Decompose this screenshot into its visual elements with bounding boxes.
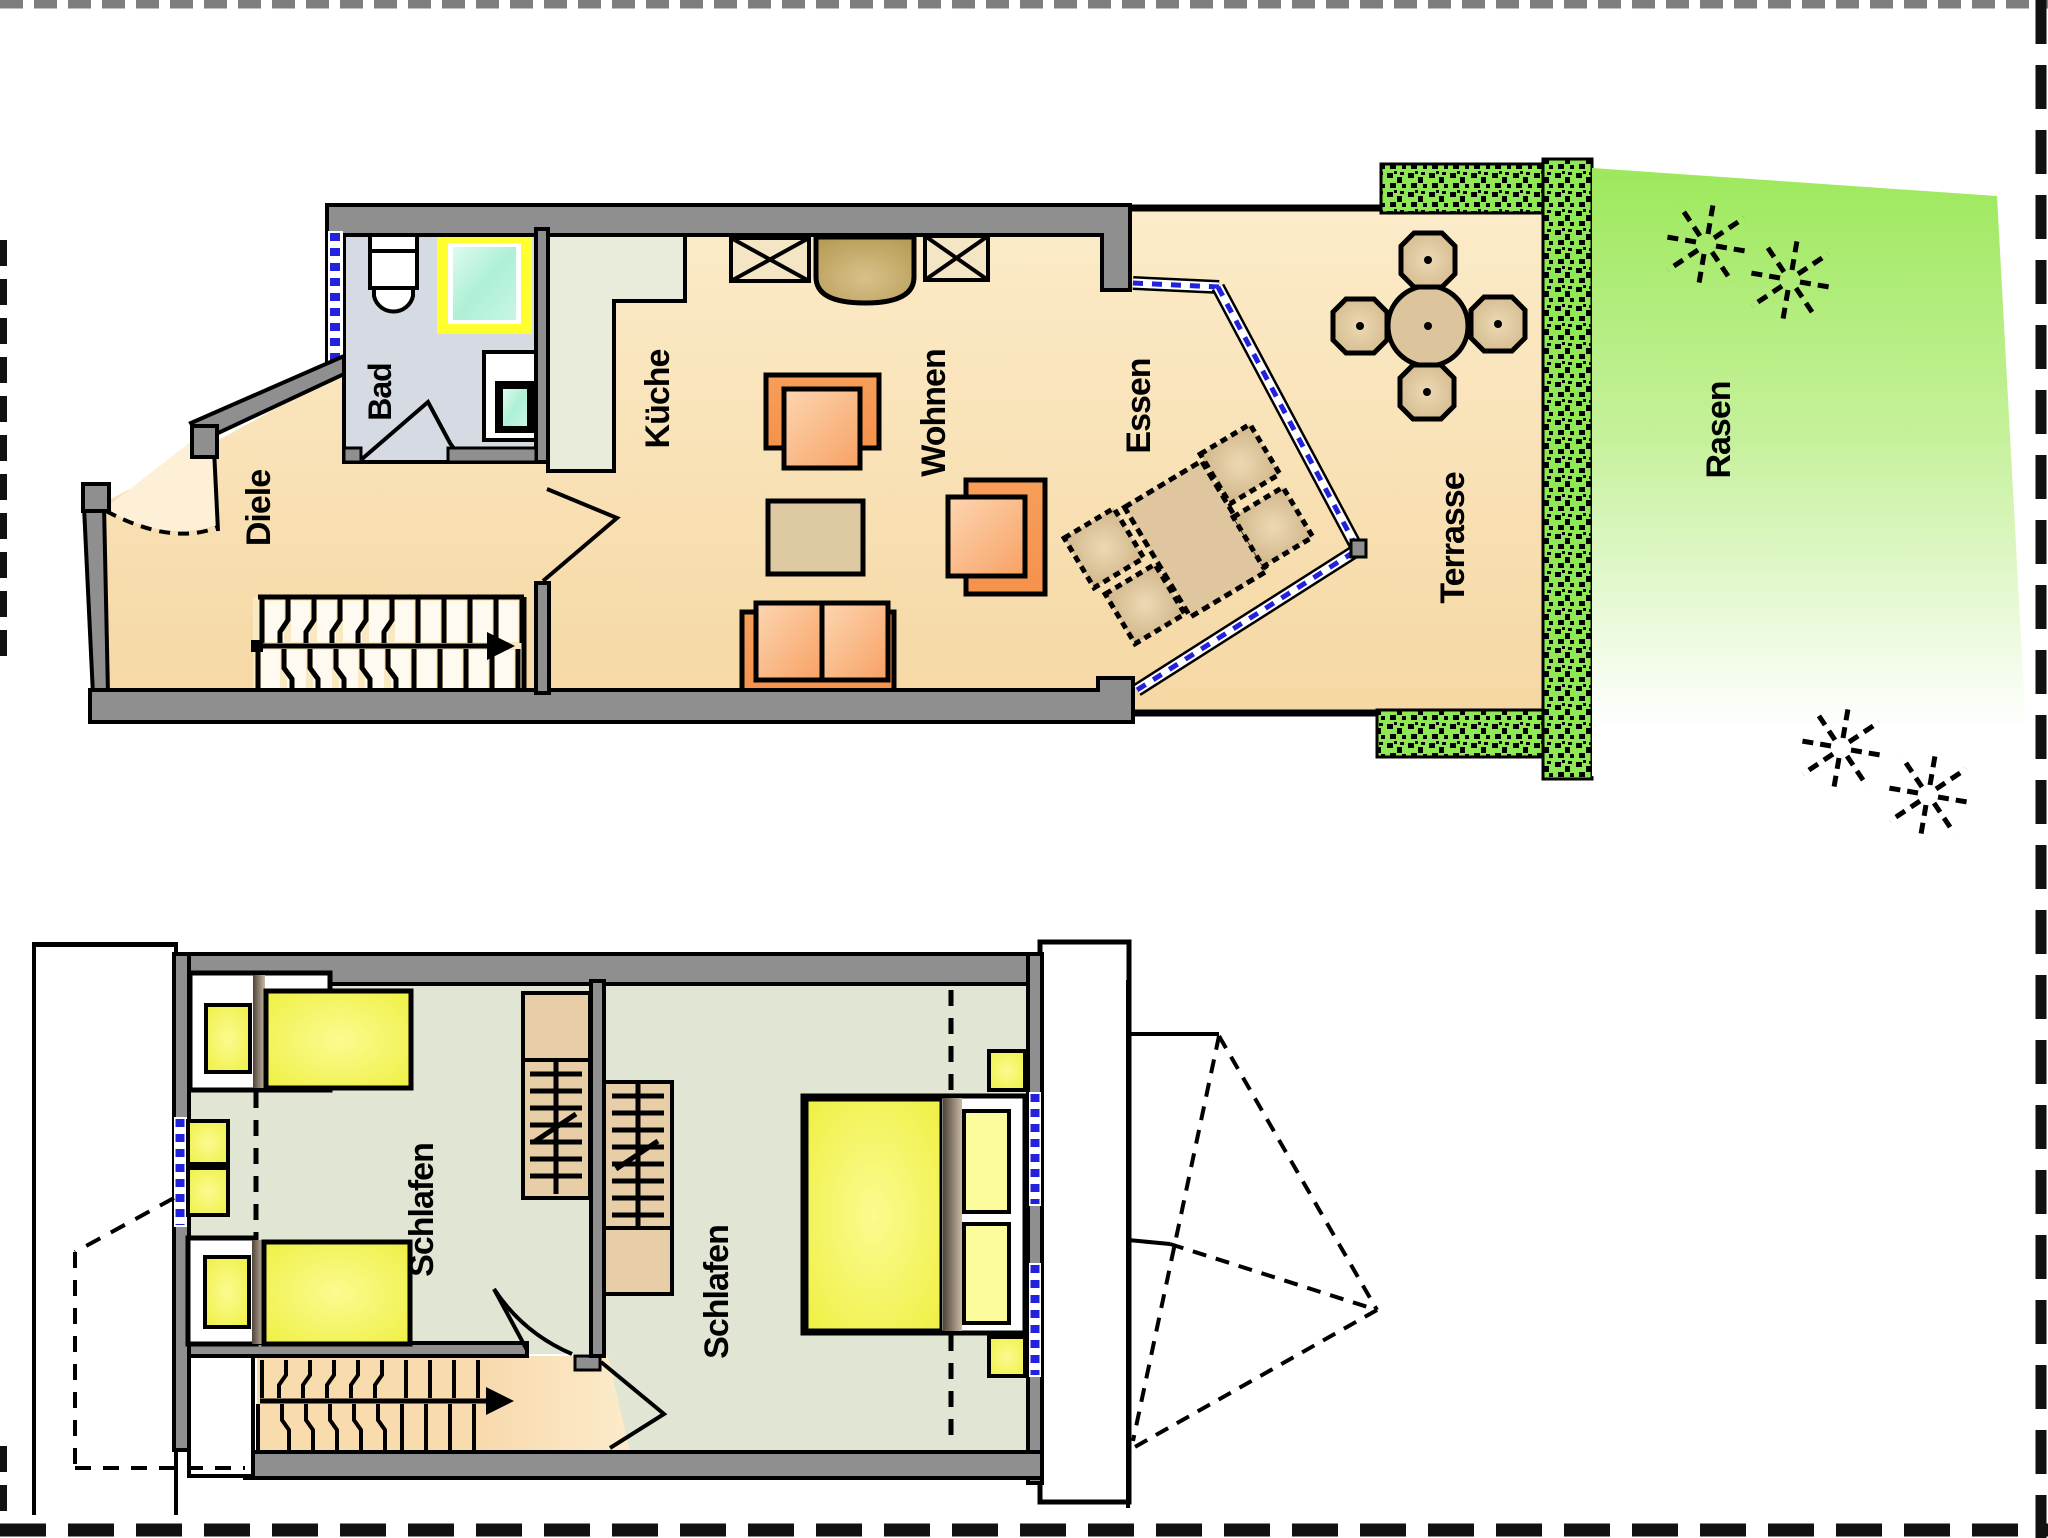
svg-text:Schlafen: Schlafen: [403, 1143, 441, 1277]
svg-text:Küche: Küche: [639, 349, 677, 448]
svg-text:Wohnen: Wohnen: [915, 349, 953, 476]
svg-text:Terrasse: Terrasse: [1434, 472, 1472, 603]
svg-text:Essen: Essen: [1120, 358, 1158, 453]
svg-text:Bad: Bad: [362, 363, 398, 420]
svg-text:Schlafen: Schlafen: [698, 1225, 736, 1359]
svg-text:Rasen: Rasen: [1700, 381, 1738, 478]
svg-text:Diele: Diele: [240, 470, 278, 546]
